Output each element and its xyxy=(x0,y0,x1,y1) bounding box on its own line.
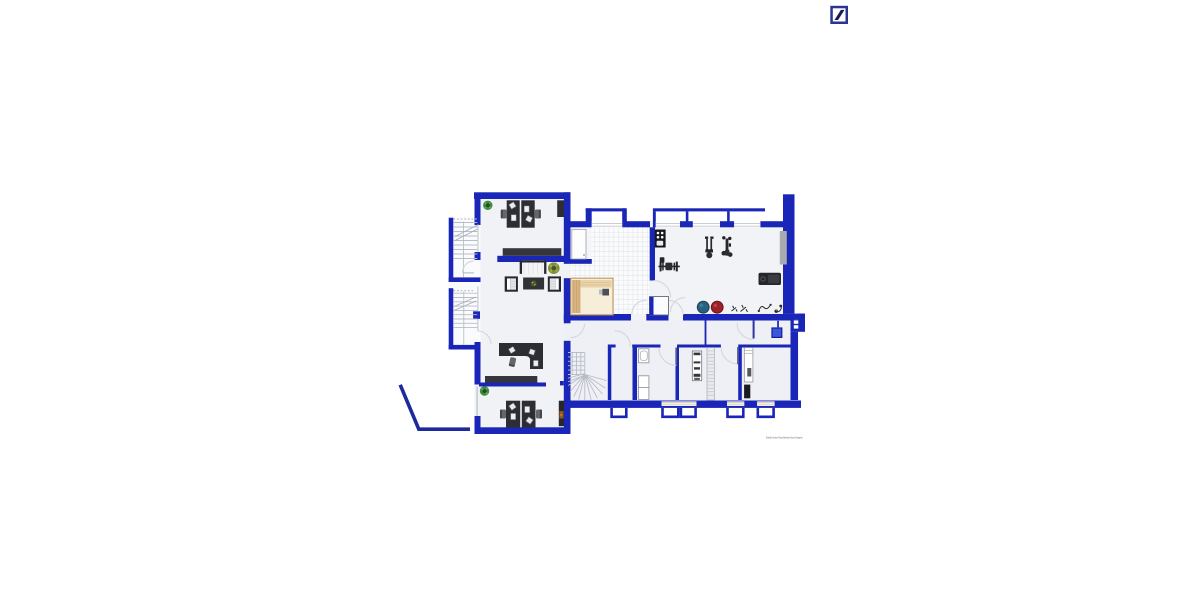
svg-text:Erstellt mit dem RoomSketcher: Erstellt mit dem RoomSketcher Home Desig… xyxy=(766,436,803,440)
